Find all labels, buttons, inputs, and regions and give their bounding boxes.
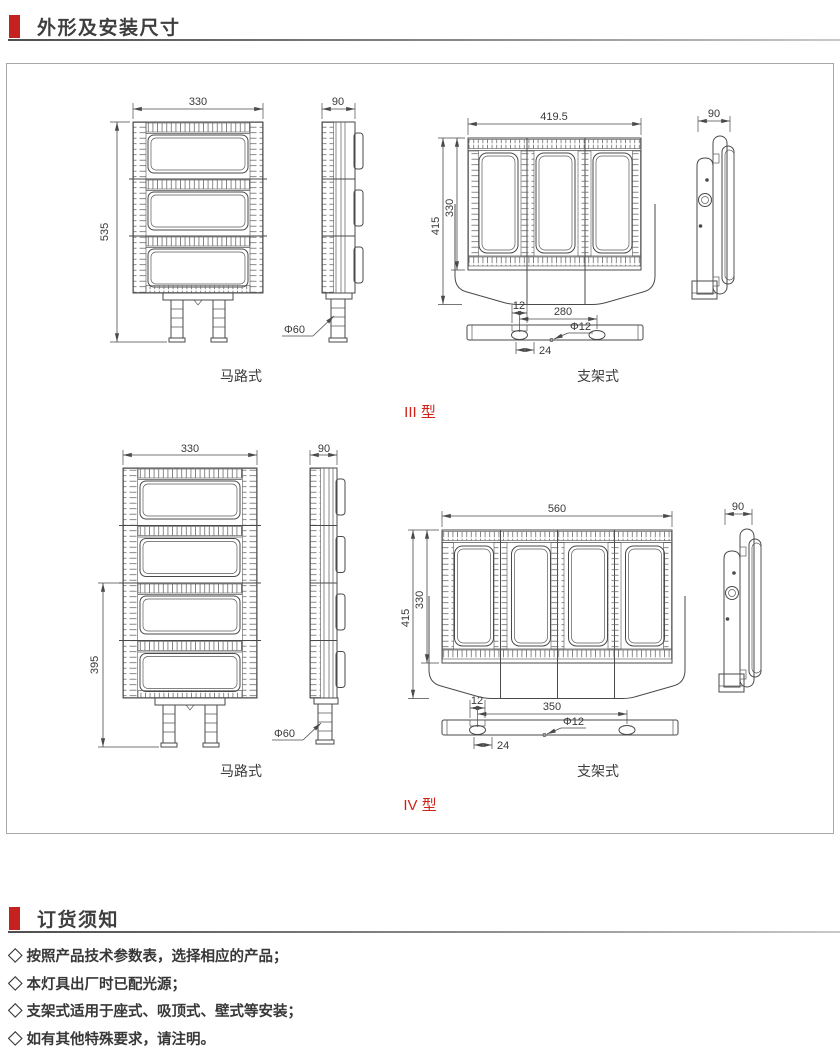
dim-slot-width-label: 24 [497, 740, 509, 752]
dim-side-width-label: 90 [332, 96, 344, 108]
note-item: ◇ 如有其他特殊要求，请注明。 [8, 1027, 302, 1051]
dim-hole-span-label: 280 [554, 306, 572, 318]
ordering-section-title: 订货须知 [37, 905, 119, 932]
dim-pole-dia-label: Φ60 [274, 728, 295, 740]
dim-hole-offset-label: 12 [471, 695, 483, 707]
red-marker [9, 907, 20, 930]
iii-type-label: III 型 [360, 401, 480, 422]
dim-width-label: 330 [181, 443, 199, 455]
dim-inner-height-label: 330 [414, 591, 426, 609]
iii-bracket-type-drawing: 419.5 415 330 [430, 96, 790, 358]
iv-type-label: IV 型 [360, 794, 480, 815]
iii-road-pole-dia-callout: Φ60 [282, 316, 334, 336]
iv-bracket-side-view: 90 [719, 501, 761, 692]
dim-height-label: 535 [99, 223, 111, 241]
note-item: ◇ 支架式适用于座式、吸顶式、壁式等安装； [8, 999, 302, 1027]
iii-bracket-side-view: 90 [692, 108, 734, 299]
dimensions-section-title: 外形及安装尺寸 [37, 13, 181, 40]
dim-width-label: 419.5 [540, 111, 568, 123]
iv-road-type-drawing: 330 395 Φ60 90 [88, 440, 380, 752]
dim-width-label: 560 [548, 503, 566, 515]
iv-road-front-view: 330 395 [89, 443, 261, 747]
iv-road-caption: 马路式 [186, 761, 296, 781]
header-divider [8, 39, 840, 41]
dim-side-width-label: 90 [318, 443, 330, 455]
dim-hole-dia-label: Φ12 [570, 321, 591, 333]
dim-width-label: 330 [189, 96, 207, 108]
dim-total-height-label: 415 [400, 609, 412, 627]
red-marker [9, 15, 20, 38]
note-item: ◇ 按照产品技术参数表，选择相应的产品； [8, 944, 302, 972]
iii-road-side-view: 90 [322, 96, 363, 342]
iv-bracket-mounting-bar: 12 350 Φ12 24 [442, 695, 678, 752]
dim-hole-dia-label: Φ12 [563, 716, 584, 728]
dim-slot-width-label: 24 [539, 345, 551, 357]
ordering-notes-list: ◇ 按照产品技术参数表，选择相应的产品； ◇ 本灯具出厂时已配光源； ◇ 支架式… [8, 944, 302, 1051]
iv-bracket-front-view: 560 415 330 [400, 503, 685, 699]
dim-inner-height-label: 330 [444, 199, 456, 217]
ordering-section-header: 订货须知 [9, 906, 119, 930]
dim-side-width-label: 90 [732, 501, 744, 513]
iv-road-side-view: 90 [310, 443, 345, 744]
iii-road-caption: 马路式 [186, 366, 296, 386]
iii-bracket-caption: 支架式 [543, 366, 653, 386]
dim-pole-dia-label: Φ60 [284, 324, 305, 336]
note-item: ◇ 本灯具出厂时已配光源； [8, 972, 302, 1000]
dim-side-width-label: 90 [708, 108, 720, 120]
dim-total-height-label: 415 [430, 217, 442, 235]
iii-road-front-view: 330 535 [99, 96, 267, 342]
iv-bracket-type-drawing: 560 415 330 [400, 490, 790, 752]
catalog-page: 外形及安装尺寸 330 535 Φ60 [0, 0, 840, 1051]
dim-hole-span-label: 350 [543, 701, 561, 713]
iv-road-pole-dia-callout: Φ60 [272, 723, 321, 740]
iii-bracket-mounting-bar: 12 280 Φ12 24 [467, 300, 643, 357]
dimensions-section-header: 外形及安装尺寸 [9, 14, 181, 38]
dim-hole-offset-label: 12 [513, 300, 525, 312]
dim-height-label: 395 [89, 656, 101, 674]
header-divider [8, 931, 840, 933]
iii-bracket-front-view: 419.5 415 330 [430, 111, 655, 305]
iii-road-type-drawing: 330 535 Φ60 90 [88, 86, 380, 356]
iv-bracket-caption: 支架式 [543, 761, 653, 781]
